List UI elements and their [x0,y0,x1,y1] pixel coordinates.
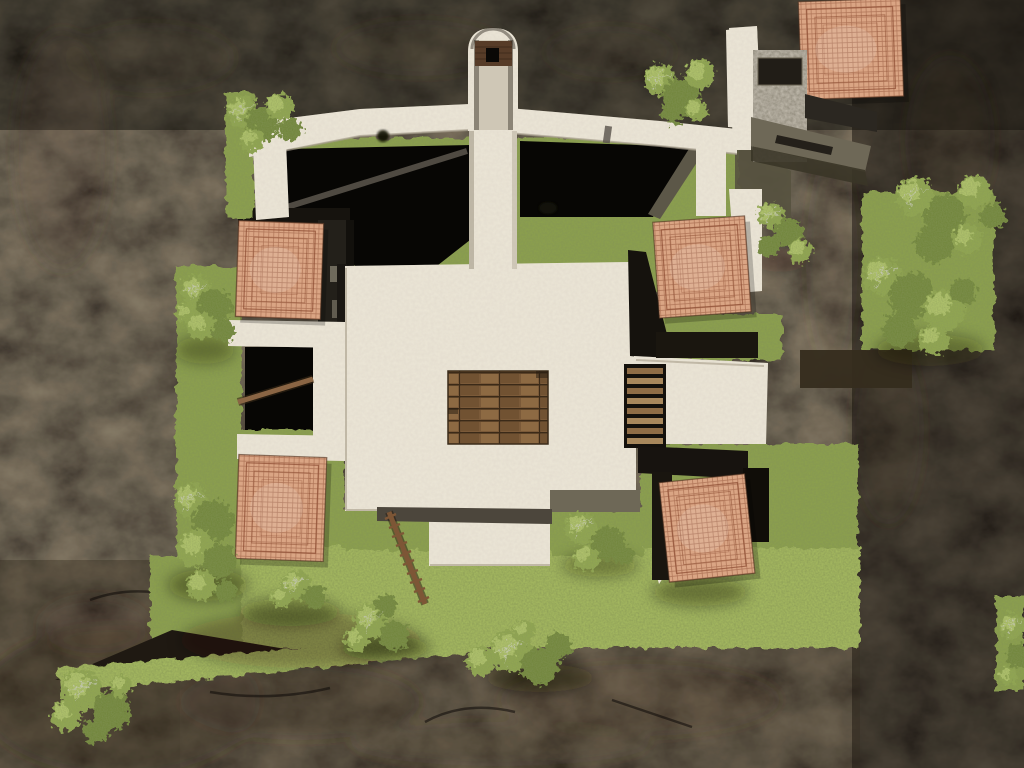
foliage-blob [375,595,397,617]
foliage-blob [883,313,917,347]
foliage-highlight [922,328,939,345]
foliage-highlight [790,241,803,254]
foliage-highlight [960,178,979,197]
wooden-platform [448,371,548,444]
foliage-blob [758,236,780,258]
roof-upper-right [653,216,757,325]
foliage-blob [303,585,327,609]
roof-top-corner [798,0,909,106]
slats-backing [624,364,666,448]
grass-scorch-spot [539,202,557,214]
platform-notch [448,408,458,414]
foliage-highlight [178,305,189,316]
foliage-highlight [54,704,71,721]
foliage-blob [379,621,409,651]
foliage-highlight [181,534,202,555]
roof-upper-left [235,221,329,326]
platform-notch [536,371,548,378]
foliage-blob [213,320,235,342]
foliage-blob [215,580,237,602]
foliage-highlight [346,630,359,643]
foliage-highlight [242,130,255,143]
tower-edge [512,129,517,269]
foliage-highlight [515,622,527,634]
foliage-highlight [189,573,206,590]
dark-wall-band-mid [656,332,758,358]
tower-body [469,129,517,269]
foliage-blob [661,100,685,124]
wooden-slat-walkway [624,364,666,448]
foliage-highlight [469,649,486,666]
foliage-blob [915,225,953,263]
scene-canvas [0,0,1024,768]
bell-tower [468,28,518,269]
foliage-blob [278,118,302,142]
foliage-blob [83,718,109,744]
foliage-highlight [1001,669,1011,679]
foliage-highlight [688,62,705,79]
foliage-highlight [112,677,124,689]
foliage-blob [950,278,976,304]
roof-lower-left [235,454,332,567]
foliage-blob [546,633,572,659]
walkway-gray-upper [550,490,640,512]
plaza-left-column [313,344,345,437]
tower-edge [469,129,474,269]
foliage-blob [614,545,634,565]
roof-lower-right [659,473,761,588]
foliage-highlight [955,227,972,244]
building-window [758,58,802,85]
game-viewport[interactable] [0,0,1024,768]
wall-dark-spot [377,130,389,142]
wall-column-right-lower [696,136,726,216]
foliage-highlight [927,293,950,316]
foliage-highlight [268,96,283,111]
foliage-highlight [576,548,590,562]
foliage-highlight [687,101,699,113]
tower-hatch [486,48,499,62]
foliage-blob [980,203,1006,229]
foliage-highlight [190,315,205,330]
foliage-highlight [273,590,284,601]
